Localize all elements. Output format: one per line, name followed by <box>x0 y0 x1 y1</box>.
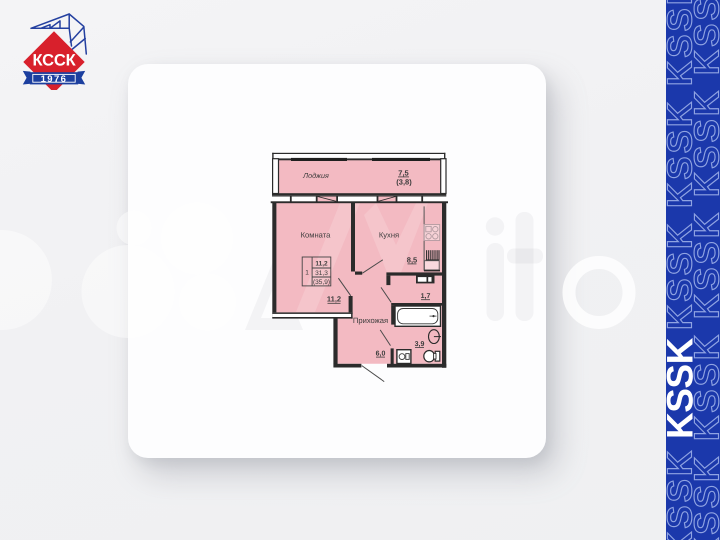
svg-text:11,2: 11,2 <box>315 261 328 268</box>
svg-text:31,3: 31,3 <box>315 270 328 277</box>
svg-text:1: 1 <box>305 270 309 277</box>
svg-text:11,2: 11,2 <box>327 295 341 304</box>
svg-text:1976: 1976 <box>41 74 68 85</box>
svg-text:Комната: Комната <box>301 230 332 239</box>
svg-text:1,7: 1,7 <box>421 293 431 300</box>
svg-text:(3,8): (3,8) <box>396 177 412 186</box>
svg-text:8,5: 8,5 <box>407 255 417 264</box>
svg-text:Лоджия: Лоджия <box>302 171 329 180</box>
svg-text:(35,9): (35,9) <box>313 279 330 286</box>
svg-text:Кухня: Кухня <box>379 230 399 239</box>
svg-text:КССК: КССК <box>33 51 77 69</box>
svg-text:6,0: 6,0 <box>376 351 386 358</box>
svg-text:KSSK KSSK KSSK KSSK KSSK: KSSK KSSK KSSK KSSK KSSK <box>688 0 720 540</box>
svg-text:Прихожая: Прихожая <box>353 316 388 325</box>
svg-text:3,9: 3,9 <box>415 341 425 348</box>
svg-text:7,5: 7,5 <box>398 168 408 177</box>
